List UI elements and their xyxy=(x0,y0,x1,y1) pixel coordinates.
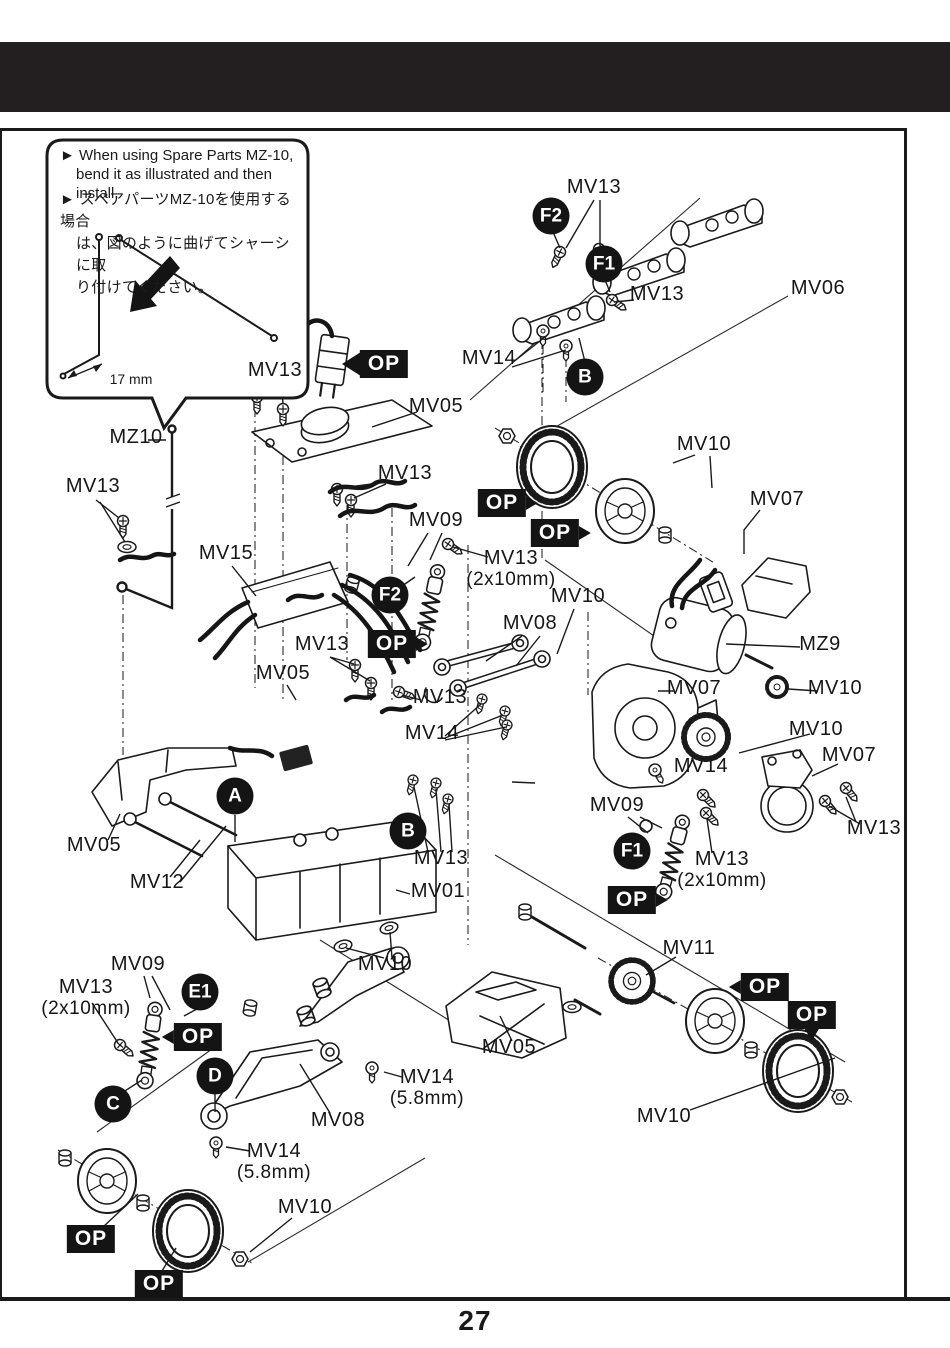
part-label: MV14(5.8mm) xyxy=(390,1067,464,1109)
part-label: MV13 xyxy=(378,463,432,484)
part-label: MV13 xyxy=(66,476,120,497)
part-label: MV12 xyxy=(130,872,184,893)
part-label: MV13(2x10mm) xyxy=(677,849,767,891)
part-label: MV05 xyxy=(482,1037,536,1058)
part-label: MV09 xyxy=(111,954,165,975)
part-label: MV14 xyxy=(405,723,459,744)
op-badge: OP xyxy=(788,1001,836,1029)
labels-layer: MV13MV06MV13MV14MV13MV05MV13MV09MV13(2x1… xyxy=(0,0,950,1348)
part-label: MZ10 xyxy=(109,427,162,448)
part-label: MV13 xyxy=(414,848,468,869)
step-badge: F1 xyxy=(586,246,623,283)
part-label: MV14 xyxy=(462,348,516,369)
op-badge: OP xyxy=(478,489,526,517)
page-number: 27 xyxy=(0,1305,950,1337)
part-label: MV05 xyxy=(256,663,310,684)
part-label: MV13 xyxy=(295,634,349,655)
part-label: MV13(2x10mm) xyxy=(41,977,131,1019)
part-label: MV05 xyxy=(409,396,463,417)
part-label: MV08 xyxy=(311,1110,365,1131)
op-badge: OP xyxy=(608,886,656,914)
part-label: MV14(5.8mm) xyxy=(237,1141,311,1183)
part-label: MV10 xyxy=(637,1106,691,1127)
part-label: MV10 xyxy=(789,719,843,740)
part-label: MV07 xyxy=(750,489,804,510)
part-label: MV10 xyxy=(278,1197,332,1218)
op-badge: OP xyxy=(174,1023,222,1051)
part-label: MV10 xyxy=(358,954,412,975)
part-label: MV13 xyxy=(567,177,621,198)
part-label: MV13 xyxy=(413,687,467,708)
step-badge: E1 xyxy=(182,974,219,1011)
part-label: MV13 xyxy=(630,284,684,305)
part-label: MV07 xyxy=(822,745,876,766)
part-label: MV10 xyxy=(677,434,731,455)
part-label: MV01 xyxy=(411,881,465,902)
op-badge: OP xyxy=(135,1270,183,1298)
step-badge: F2 xyxy=(372,577,409,614)
op-badge: OP xyxy=(368,630,416,658)
op-badge: OP xyxy=(741,973,789,1001)
step-badge: D xyxy=(197,1058,234,1095)
part-label: MV08 xyxy=(503,613,557,634)
part-label: MV06 xyxy=(791,278,845,299)
part-label: MV13(2x10mm) xyxy=(466,548,556,590)
part-label: MV10 xyxy=(551,586,605,607)
step-badge: B xyxy=(567,359,604,396)
step-badge: C xyxy=(95,1086,132,1123)
op-badge: OP xyxy=(360,350,408,378)
manual-page: ► When using Spare Parts MZ-10, bend it … xyxy=(0,0,950,1348)
part-label: MV14 xyxy=(674,756,728,777)
step-badge: F2 xyxy=(533,198,570,235)
op-badge: OP xyxy=(531,519,579,547)
part-label: MV13 xyxy=(847,818,901,839)
op-badge: OP xyxy=(67,1225,115,1253)
part-label: MV09 xyxy=(409,510,463,531)
step-badge: A xyxy=(217,778,254,815)
part-label: MV15 xyxy=(199,543,253,564)
step-badge: B xyxy=(390,813,427,850)
part-label: MV09 xyxy=(590,795,644,816)
part-label: MV05 xyxy=(67,835,121,856)
part-label: MV07 xyxy=(667,678,721,699)
part-label: MZ9 xyxy=(799,634,841,655)
part-label: MV13 xyxy=(248,360,302,381)
part-label: MV11 xyxy=(663,938,716,959)
step-badge: F1 xyxy=(614,833,651,870)
part-label: MV10 xyxy=(808,678,862,699)
